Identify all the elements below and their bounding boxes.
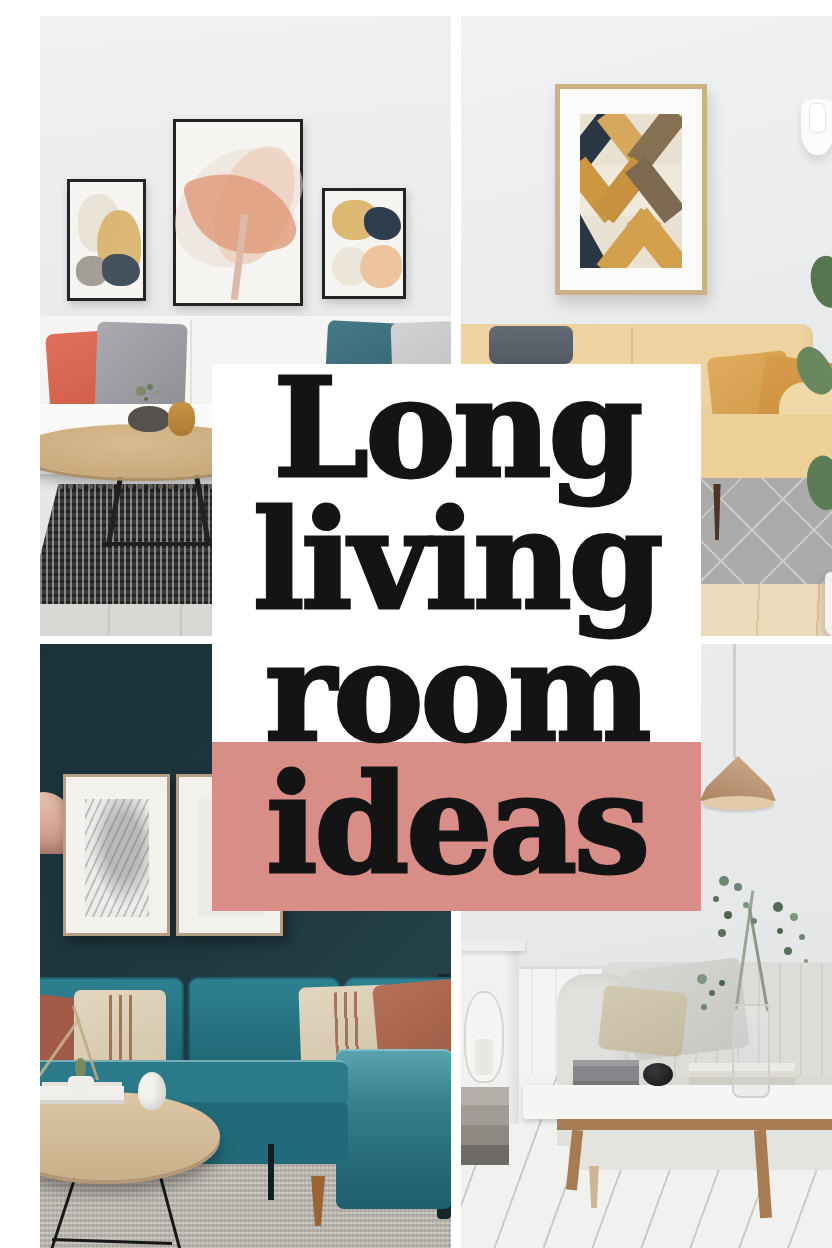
- table-leg-bar: [102, 542, 216, 546]
- table-apron: [557, 1119, 832, 1130]
- gray-sofa-base: [569, 1130, 832, 1170]
- botanical-sketch: [85, 799, 149, 917]
- eucalyptus-leaves: [719, 876, 729, 886]
- cactus: [75, 1058, 86, 1078]
- art-frame-left: [67, 179, 146, 301]
- glass-vase: [732, 1004, 770, 1098]
- pinterest-pin-image: Long living room ideas: [40, 16, 832, 1248]
- art-frame-right: [322, 188, 406, 299]
- white-vase: [138, 1072, 166, 1110]
- pendant-rod: [733, 644, 736, 758]
- title-line-3: room: [212, 626, 701, 758]
- stone-bowl: [128, 406, 170, 432]
- book-stack: [573, 1060, 639, 1085]
- white-coffee-table: [523, 1085, 832, 1119]
- title-line-4: ideas: [212, 758, 701, 890]
- beige-pillow: [598, 985, 688, 1057]
- art-frame-center: [173, 119, 303, 306]
- round-speaker: [643, 1063, 673, 1086]
- pendant-lamp-rim: [702, 796, 774, 810]
- geometric-art: [580, 114, 682, 268]
- floor-book-stack: [461, 1087, 509, 1165]
- sconce-shade: [809, 103, 826, 133]
- art-blob: [102, 254, 140, 286]
- title-line-1: Long: [212, 362, 701, 494]
- cactus-pot: [68, 1076, 94, 1100]
- title-line-2: living: [212, 494, 701, 626]
- sofa-leg: [268, 1144, 274, 1200]
- eucalyptus-leaves: [773, 902, 783, 912]
- sketch-frame-left: [63, 774, 170, 936]
- art-blob: [364, 207, 401, 240]
- geometric-art-frame: [555, 84, 707, 295]
- eucalyptus-leaves: [697, 974, 707, 984]
- pin-title: Long living room ideas: [212, 362, 701, 922]
- wall-sconce: [801, 99, 832, 155]
- art-blob: [360, 245, 402, 288]
- mantle-ledge: [461, 939, 525, 951]
- plant-sprig: [136, 386, 146, 396]
- plant-pot: [825, 572, 832, 636]
- teal-chaise: [336, 1049, 451, 1209]
- candle: [475, 1039, 493, 1075]
- amber-vase: [168, 402, 195, 436]
